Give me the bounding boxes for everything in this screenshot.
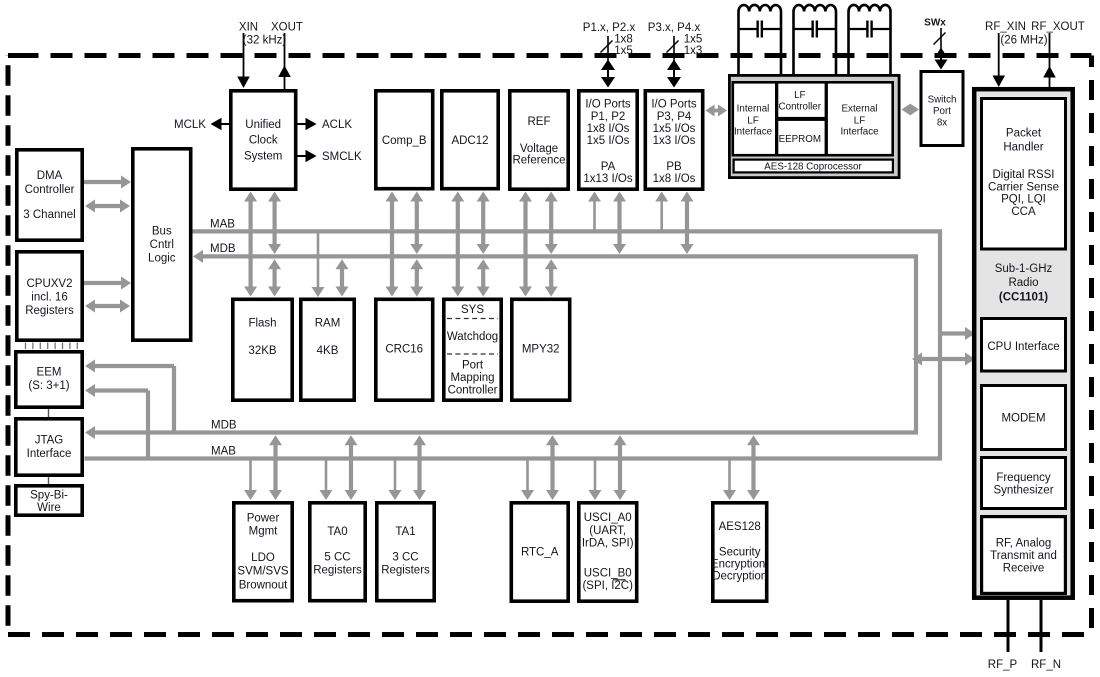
- svg-text:Controller: Controller: [779, 101, 822, 112]
- svg-text:Internal: Internal: [737, 104, 770, 115]
- svg-text:Interface: Interface: [734, 127, 773, 138]
- svg-text:Interface: Interface: [840, 127, 879, 138]
- svg-text:Watchdog: Watchdog: [447, 331, 498, 343]
- svg-text:(SPI, I2C): (SPI, I2C): [582, 580, 633, 592]
- svg-text:Clock: Clock: [249, 135, 278, 147]
- svg-text:Interface: Interface: [27, 448, 72, 460]
- svg-text:Frequency: Frequency: [996, 472, 1051, 484]
- svg-text:1x8 I/Os: 1x8 I/Os: [653, 173, 696, 185]
- svg-text:Encryption,: Encryption,: [711, 559, 769, 571]
- svg-text:System: System: [244, 151, 282, 163]
- svg-text:External: External: [842, 104, 878, 115]
- svg-text:Radio: Radio: [1008, 277, 1038, 289]
- svg-text:(S: 3+1): (S: 3+1): [28, 380, 69, 392]
- svg-text:CCA: CCA: [1011, 206, 1036, 218]
- svg-text:SYS: SYS: [461, 304, 484, 316]
- svg-text:SVM/SVS: SVM/SVS: [237, 566, 288, 578]
- svg-text:Cntrl: Cntrl: [150, 239, 174, 251]
- svg-text:Brownout: Brownout: [239, 580, 288, 592]
- svg-text:Registers: Registers: [25, 305, 74, 317]
- svg-text:1x5: 1x5: [614, 45, 633, 57]
- svg-text:RF, Analog: RF, Analog: [996, 538, 1052, 550]
- svg-text:Voltage: Voltage: [520, 143, 558, 155]
- svg-text:Packet: Packet: [1006, 127, 1042, 139]
- svg-text:Transmit and: Transmit and: [990, 550, 1057, 562]
- svg-text:PB: PB: [666, 161, 682, 173]
- svg-text:AES128: AES128: [719, 521, 761, 533]
- svg-text:JTAG: JTAG: [35, 435, 64, 447]
- svg-text:RF_XIN: RF_XIN: [985, 21, 1026, 33]
- svg-text:incl. 16: incl. 16: [31, 292, 67, 304]
- svg-text:XIN: XIN: [239, 22, 258, 34]
- svg-text:CRC16: CRC16: [385, 344, 423, 356]
- svg-text:(UART,: (UART,: [589, 525, 626, 537]
- svg-text:SMCLK: SMCLK: [322, 151, 362, 163]
- svg-text:P1.x, P2.x: P1.x, P2.x: [583, 22, 636, 34]
- svg-text:P3.x, P4.x: P3.x, P4.x: [648, 22, 701, 34]
- svg-text:Digital RSSI: Digital RSSI: [993, 169, 1055, 181]
- svg-text:1x3: 1x3: [684, 45, 703, 57]
- svg-text:ADC12: ADC12: [451, 135, 488, 147]
- svg-text:Registers: Registers: [381, 565, 430, 577]
- svg-text:RF_N: RF_N: [1031, 659, 1061, 671]
- svg-text:Port: Port: [462, 360, 484, 372]
- svg-text:3 CC: 3 CC: [392, 552, 418, 564]
- svg-text:LF: LF: [747, 115, 758, 126]
- svg-text:RF_P: RF_P: [988, 659, 1018, 671]
- svg-text:Bus: Bus: [152, 226, 172, 238]
- svg-text:MDB: MDB: [211, 420, 237, 432]
- svg-text:1x13 I/Os: 1x13 I/Os: [583, 173, 632, 185]
- svg-text:Sub-1-GHz: Sub-1-GHz: [995, 263, 1053, 275]
- svg-text:MAB: MAB: [211, 446, 236, 458]
- svg-text:Carrier Sense: Carrier Sense: [988, 181, 1059, 193]
- svg-text:1x3 I/Os: 1x3 I/Os: [653, 135, 696, 147]
- svg-text:AES-128 Coprocessor: AES-128 Coprocessor: [764, 162, 862, 173]
- svg-text:(CC1101): (CC1101): [999, 291, 1048, 303]
- svg-text:USCI_A0: USCI_A0: [584, 512, 632, 524]
- svg-text:PA: PA: [601, 161, 616, 173]
- svg-text:(26 MHz): (26 MHz): [1000, 35, 1047, 47]
- svg-text:(32 kHz): (32 kHz): [243, 35, 287, 47]
- svg-text:USCI_B0: USCI_B0: [584, 568, 632, 580]
- svg-text:I/O Ports: I/O Ports: [651, 98, 697, 110]
- svg-text:P1, P2: P1, P2: [591, 111, 626, 123]
- svg-text:ACLK: ACLK: [322, 119, 352, 131]
- svg-text:EEPROM: EEPROM: [779, 134, 821, 145]
- svg-text:SWx: SWx: [924, 18, 946, 29]
- svg-text:IrDA, SPI): IrDA, SPI): [582, 538, 634, 550]
- svg-text:TA1: TA1: [395, 526, 415, 538]
- svg-text:CPU Interface: CPU Interface: [987, 341, 1059, 353]
- svg-text:TA0: TA0: [327, 526, 347, 538]
- svg-text:Mapping: Mapping: [450, 372, 494, 384]
- svg-text:8x: 8x: [937, 118, 947, 129]
- svg-text:1x5 I/Os: 1x5 I/Os: [587, 135, 630, 147]
- svg-text:32KB: 32KB: [248, 345, 276, 357]
- svg-text:Synthesizer: Synthesizer: [993, 485, 1053, 497]
- svg-text:Switch: Switch: [928, 95, 957, 106]
- svg-text:LDO: LDO: [251, 552, 275, 564]
- svg-text:Security: Security: [719, 547, 761, 559]
- svg-text:Handler: Handler: [1003, 142, 1043, 154]
- svg-text:Receive: Receive: [1003, 563, 1045, 575]
- svg-text:Flash: Flash: [248, 318, 276, 330]
- svg-text:MDB: MDB: [210, 243, 236, 255]
- svg-text:1x5 I/Os: 1x5 I/Os: [653, 123, 696, 135]
- svg-text:5 CC: 5 CC: [324, 552, 350, 564]
- svg-text:Logic: Logic: [148, 253, 176, 265]
- svg-text:DMA: DMA: [37, 170, 63, 182]
- svg-text:1x5: 1x5: [684, 34, 703, 46]
- svg-text:MAB: MAB: [210, 218, 235, 230]
- svg-text:4KB: 4KB: [317, 345, 339, 357]
- svg-text:Controller: Controller: [448, 385, 498, 397]
- svg-text:RAM: RAM: [315, 318, 341, 330]
- svg-text:Port: Port: [933, 106, 951, 117]
- svg-text:CPUXV2: CPUXV2: [26, 278, 72, 290]
- svg-text:Comp_B: Comp_B: [382, 135, 427, 147]
- svg-text:1x8: 1x8: [614, 34, 633, 46]
- svg-text:RF_XOUT: RF_XOUT: [1031, 21, 1085, 33]
- svg-text:LF: LF: [794, 90, 805, 101]
- svg-text:MPY32: MPY32: [522, 344, 560, 356]
- svg-text:RTC_A: RTC_A: [521, 547, 559, 559]
- svg-text:I/O Ports: I/O Ports: [585, 98, 631, 110]
- svg-text:XOUT: XOUT: [271, 22, 303, 34]
- svg-text:P3, P4: P3, P4: [657, 111, 692, 123]
- svg-text:EEM: EEM: [37, 367, 62, 379]
- svg-text:LF: LF: [854, 115, 865, 126]
- svg-text:REF: REF: [528, 116, 551, 128]
- svg-text:Unified: Unified: [245, 119, 281, 131]
- svg-text:Mgmt: Mgmt: [249, 526, 279, 538]
- svg-text:Power: Power: [247, 513, 280, 525]
- svg-text:Spy-Bi-: Spy-Bi-: [30, 490, 68, 502]
- svg-text:MCLK: MCLK: [174, 119, 206, 131]
- svg-text:Wire: Wire: [37, 502, 61, 514]
- svg-text:PQI, LQI: PQI, LQI: [1001, 193, 1046, 205]
- svg-text:1x8 I/Os: 1x8 I/Os: [587, 123, 630, 135]
- svg-text:Reference: Reference: [512, 155, 565, 167]
- svg-text:Registers: Registers: [313, 565, 362, 577]
- svg-text:3 Channel: 3 Channel: [23, 209, 75, 221]
- svg-text:Decryption: Decryption: [712, 571, 767, 583]
- svg-text:MODEM: MODEM: [1001, 413, 1045, 425]
- svg-text:Controller: Controller: [25, 184, 75, 196]
